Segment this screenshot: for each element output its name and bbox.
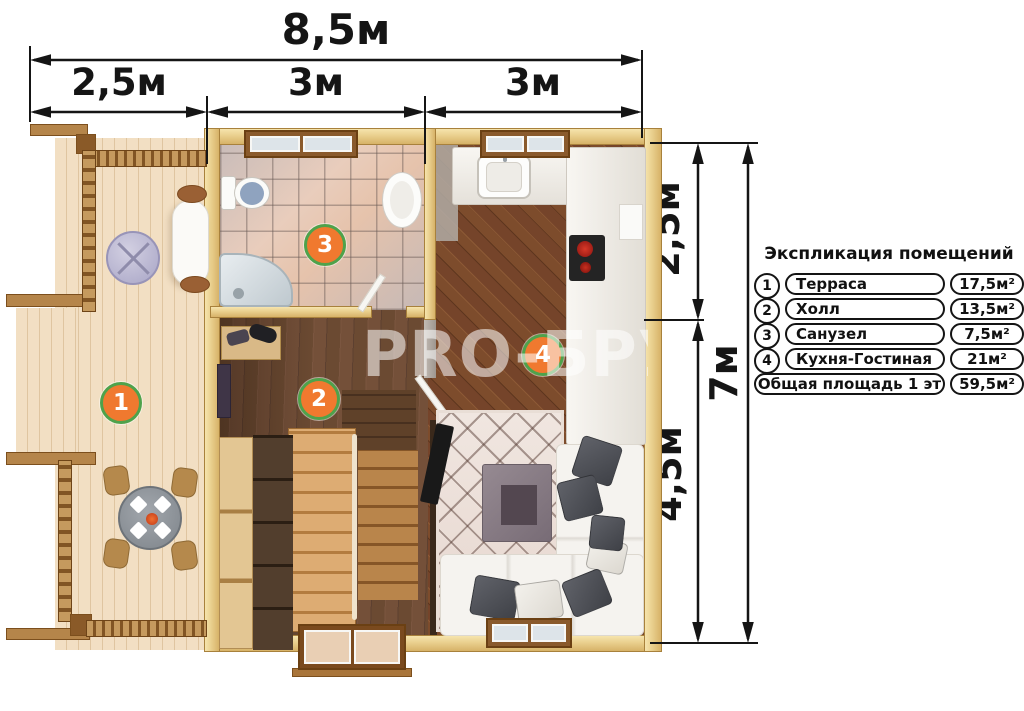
dimension-lines [0,0,1024,711]
floor-plan-page: PRO-БРУС 1 2 3 4 [0,0,1024,711]
